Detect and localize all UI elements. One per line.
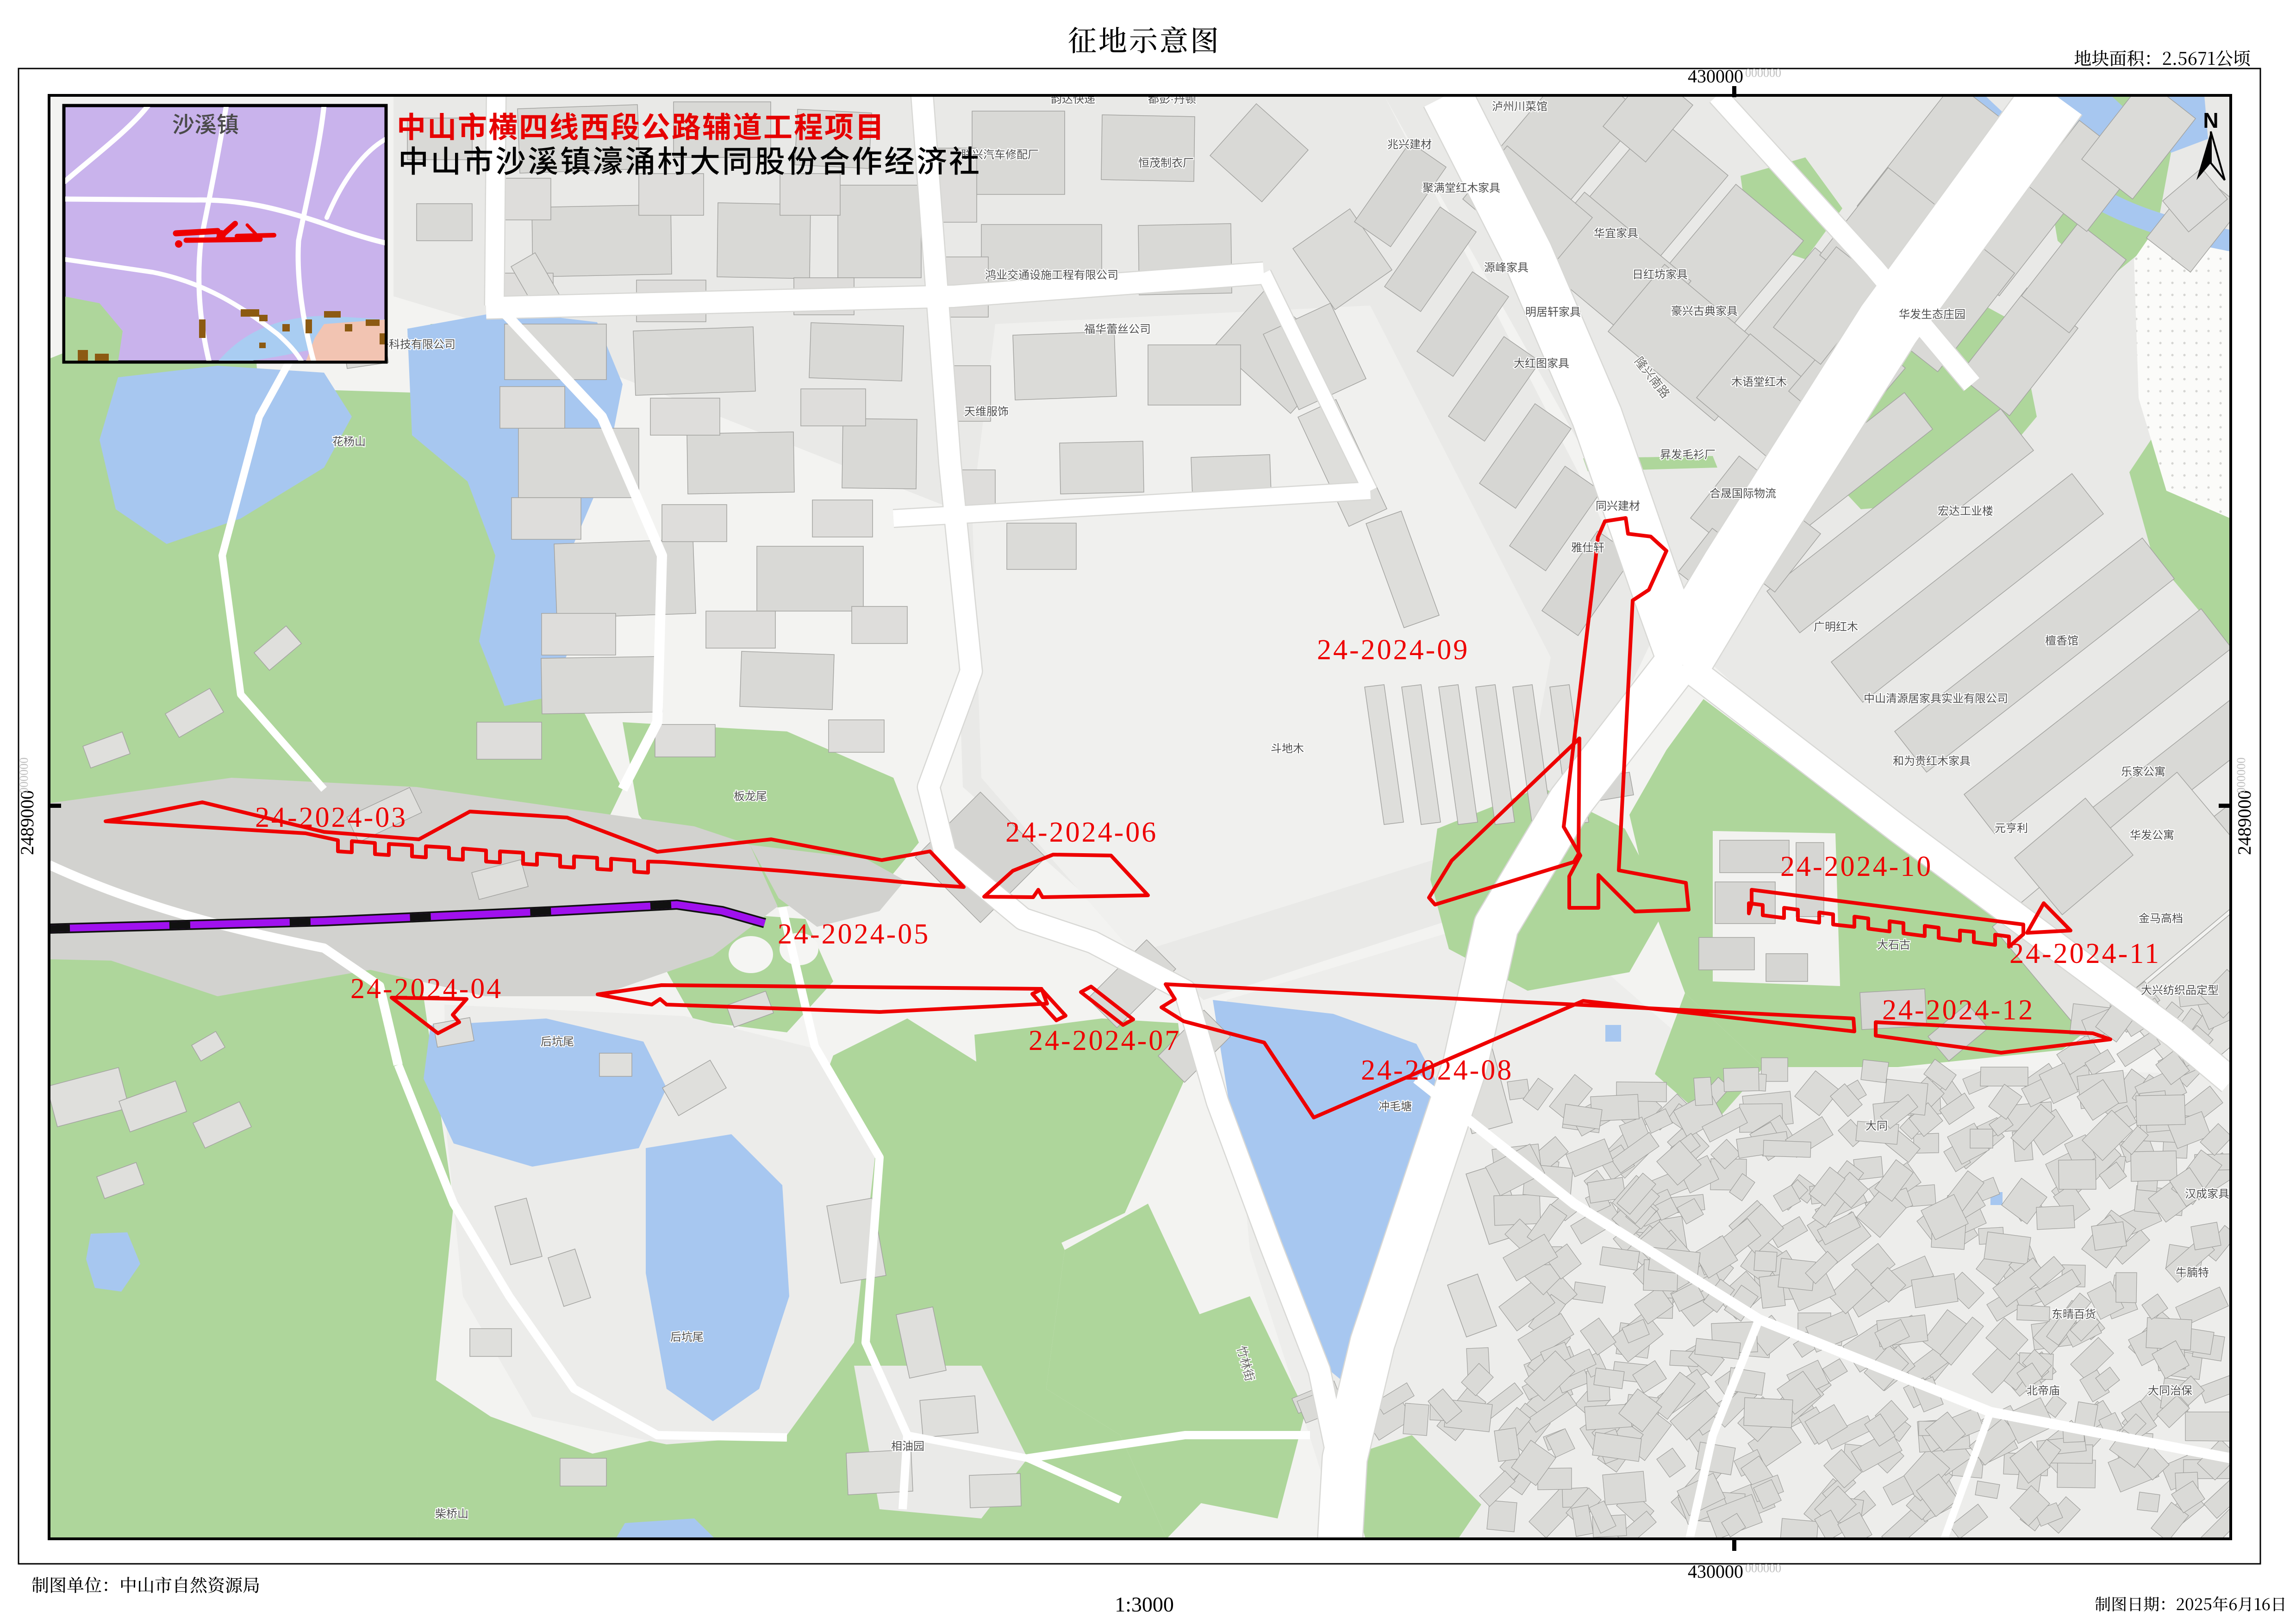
svg-text:24-2024-12: 24-2024-12 [1882,994,2034,1026]
svg-text:华宜家具: 华宜家具 [1594,227,1638,240]
svg-text:同兴建材: 同兴建材 [1596,500,1640,512]
svg-text:元亨利: 元亨利 [1995,822,2028,835]
svg-text:联兴汽车修配厂: 联兴汽车修配厂 [961,149,1039,161]
svg-text:大石古: 大石古 [1877,939,1910,951]
svg-text:24-2024-04: 24-2024-04 [350,973,503,1005]
svg-text:和为贵红木家具: 和为贵红木家具 [1893,755,1971,768]
svg-text:牛腩特: 牛腩特 [2176,1267,2209,1279]
svg-text:N: N [2203,108,2218,132]
svg-text:24-2024-10: 24-2024-10 [1780,851,1933,882]
svg-text:北帝庙: 北帝庙 [2027,1385,2060,1397]
svg-text:大红图家具: 大红图家具 [1514,357,1569,370]
svg-text:合晟国际物流: 合晟国际物流 [1710,487,1776,500]
svg-text:000000: 000000 [1745,66,1781,80]
svg-text:檀香馆: 檀香馆 [2045,635,2078,647]
svg-text:2489000: 2489000 [17,790,37,855]
svg-text:鸿业交通设施工程有限公司: 鸿业交通设施工程有限公司 [985,269,1118,281]
svg-text:大同: 大同 [1865,1120,1888,1132]
svg-text:000000: 000000 [2234,757,2248,793]
svg-text:24-2024-08: 24-2024-08 [1361,1055,1513,1086]
svg-text:福华蕾丝公司: 福华蕾丝公司 [1084,323,1151,336]
svg-text:宏达工业楼: 宏达工业楼 [1938,505,1993,518]
svg-text:大同治保: 大同治保 [2148,1385,2192,1397]
svg-text:430000: 430000 [1688,1561,1743,1582]
svg-text:24-2024-11: 24-2024-11 [2009,938,2161,969]
svg-text:24-2024-05: 24-2024-05 [778,918,930,950]
svg-text:24-2024-06: 24-2024-06 [1005,817,1158,848]
svg-text:华发公寓: 华发公寓 [2130,829,2174,842]
svg-text:000000: 000000 [1745,1562,1781,1575]
svg-text:木语堂红木: 木语堂红木 [1731,376,1787,388]
svg-text:斗地木: 斗地木 [1271,743,1304,755]
svg-text:000000: 000000 [17,757,31,793]
svg-text:乐家公寓: 乐家公寓 [2121,766,2165,778]
svg-text:豪兴古典家具: 豪兴古典家具 [1671,305,1738,318]
svg-text:兆兴建材: 兆兴建材 [1387,138,1432,151]
svg-text:大兴纺织品定型: 大兴纺织品定型 [2141,984,2219,997]
svg-text:雅仕轩: 雅仕轩 [1571,542,1604,554]
svg-text:后坑尾: 后坑尾 [541,1036,574,1048]
svg-text:中山清源居家具实业有限公司: 中山清源居家具实业有限公司 [1864,693,2008,705]
svg-text:柴桥山: 柴桥山 [435,1508,468,1520]
svg-text:华发生态庄园: 华发生态庄园 [1899,308,1965,321]
svg-text:恒茂制衣厂: 恒茂制衣厂 [1138,157,1194,169]
svg-text:源峰家具: 源峰家具 [1484,262,1529,274]
svg-text:24-2024-07: 24-2024-07 [1029,1025,1181,1056]
svg-text:2489000: 2489000 [2234,790,2255,855]
svg-text:24-2024-09: 24-2024-09 [1317,634,1469,666]
svg-text:昇发毛衫厂: 昇发毛衫厂 [1660,449,1716,461]
svg-text:汉成家具: 汉成家具 [2185,1188,2229,1200]
svg-text:后坑尾: 后坑尾 [670,1331,704,1343]
svg-text:天维服饰: 天维服饰 [964,406,1009,418]
svg-text:花杨山: 花杨山 [332,436,366,448]
svg-text:金马高档: 金马高档 [2139,912,2183,925]
svg-text:冲毛塘: 冲毛塘 [1379,1100,1412,1113]
svg-text:明居轩家具: 明居轩家具 [1525,306,1581,319]
svg-text:1:3000: 1:3000 [1115,1593,1174,1616]
svg-text:430000: 430000 [1688,66,1743,87]
svg-text:广明红木: 广明红木 [1814,621,1858,633]
svg-text:泸州川菜馆: 泸州川菜馆 [1492,100,1547,113]
svg-text:聚满堂红木家具: 聚满堂红木家具 [1423,182,1500,194]
svg-text:板龙尾: 板龙尾 [734,790,767,803]
svg-text:东晴百货: 东晴百货 [2052,1308,2096,1321]
svg-text:日红坊家具: 日红坊家具 [1632,269,1688,281]
svg-text:24-2024-03: 24-2024-03 [255,802,407,833]
svg-text:相油园: 相油园 [891,1440,924,1453]
